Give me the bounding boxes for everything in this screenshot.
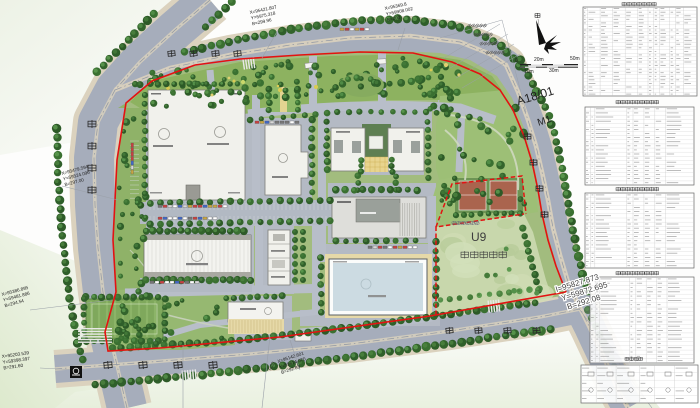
svg-text:0: 0 bbox=[515, 58, 518, 64]
svg-text:20m: 20m bbox=[534, 57, 544, 63]
svg-text:10m: 10m bbox=[524, 69, 534, 75]
svg-text:30m: 30m bbox=[549, 68, 559, 74]
svg-text:50m: 50m bbox=[570, 56, 580, 62]
svg-text:U9: U9 bbox=[471, 230, 487, 244]
